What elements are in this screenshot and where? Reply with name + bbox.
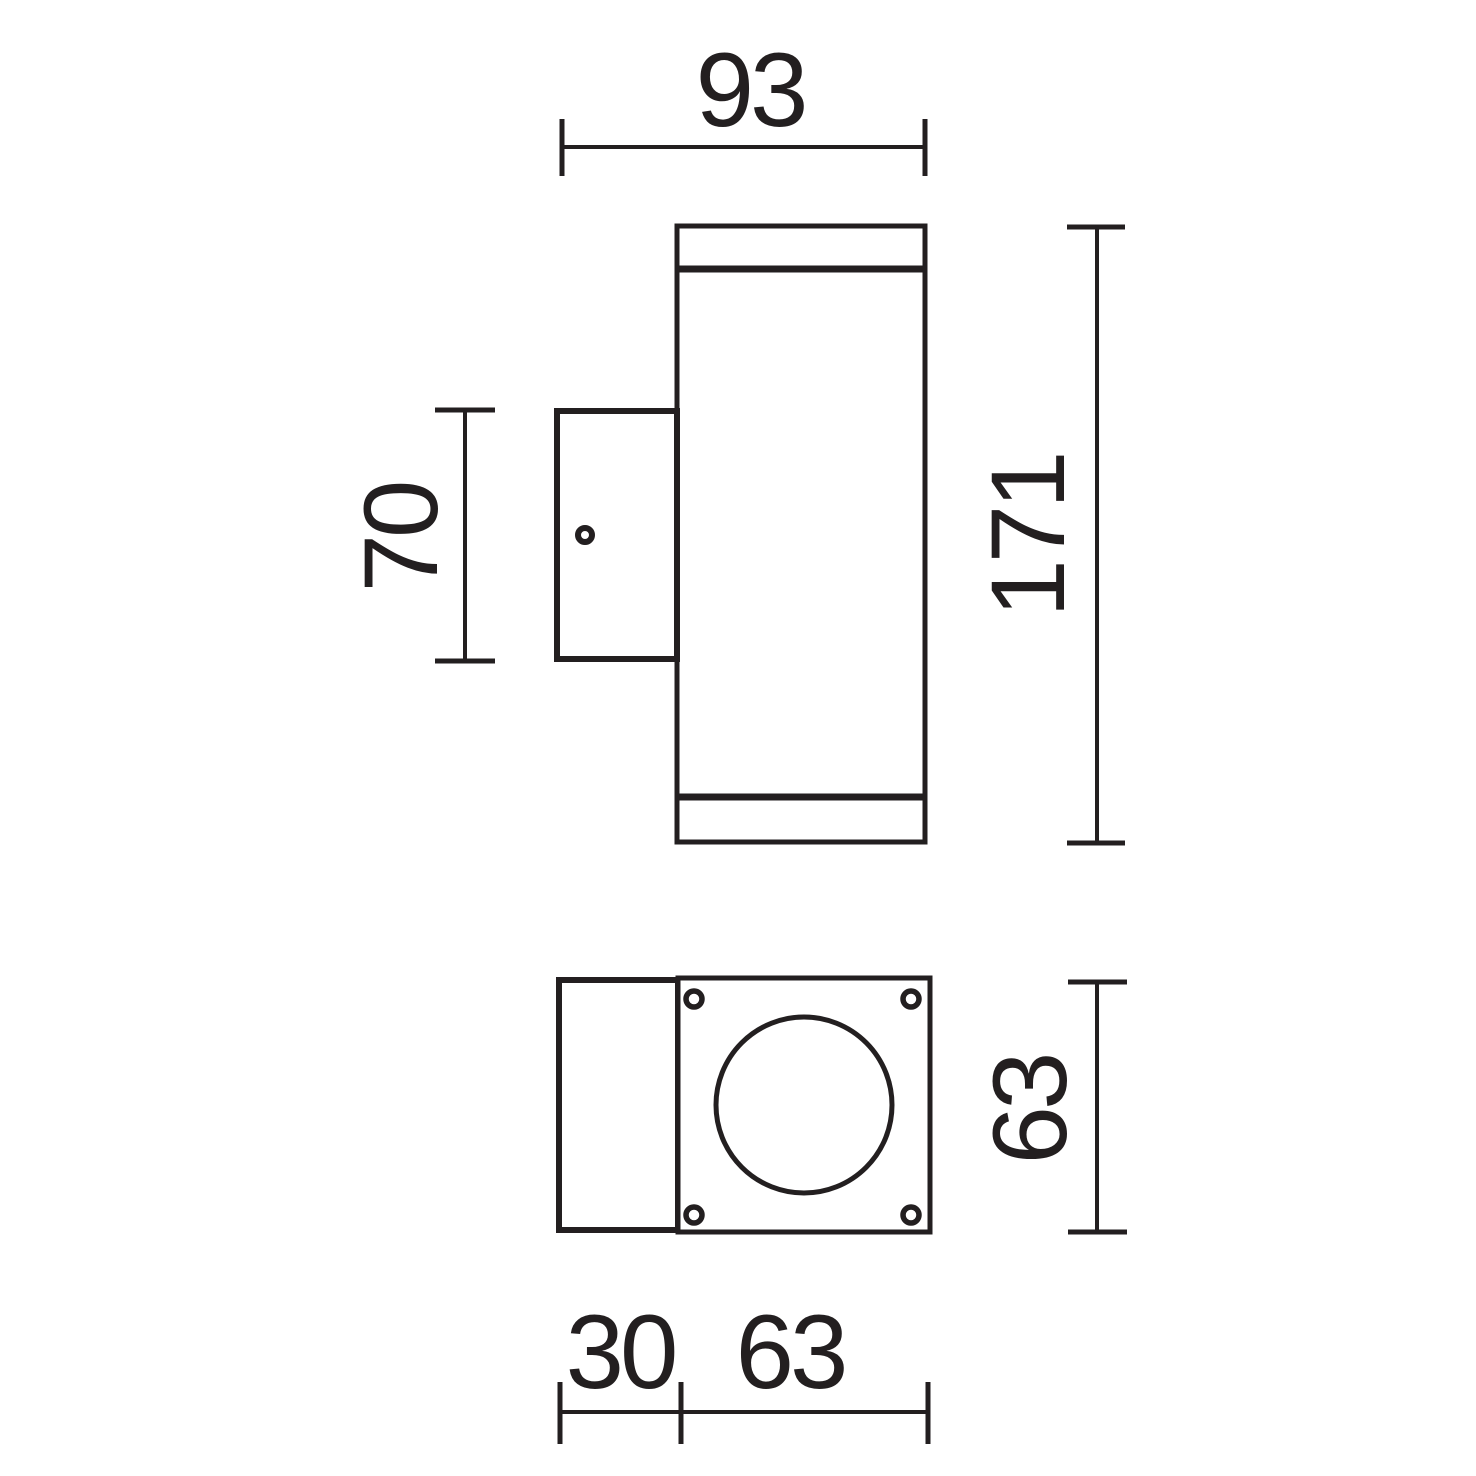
- bottom-view: [559, 978, 930, 1232]
- dimension-base-height: 63: [972, 982, 1127, 1232]
- dimension-label-overall-height: 171: [970, 454, 1087, 617]
- dimension-overall-height: 171: [970, 227, 1125, 843]
- dimension-label-base-width: 63: [736, 1294, 845, 1411]
- dimension-label-base-height: 63: [972, 1056, 1089, 1165]
- screw-hole-icon: [686, 1207, 702, 1223]
- dimension-label-overall-width: 93: [696, 32, 805, 149]
- bracket-screw-hole-icon: [578, 528, 592, 542]
- wall-light-dimension-drawing: 93 171 70 63 3: [0, 0, 1476, 1476]
- bracket-bottom-outline: [559, 980, 678, 1230]
- dimension-label-bracket-depth: 30: [566, 1294, 675, 1411]
- side-view: [557, 226, 925, 842]
- lamp-body-outline: [677, 226, 925, 842]
- screw-hole-icon: [686, 991, 702, 1007]
- dimension-bottom-widths: 30 63: [560, 1294, 928, 1444]
- dimension-label-bracket-height: 70: [343, 483, 460, 592]
- screw-hole-icon: [903, 991, 919, 1007]
- dimension-drawing-page: 93 171 70 63 3: [0, 0, 1476, 1476]
- screw-hole-icon: [903, 1207, 919, 1223]
- dimension-bracket-height: 70: [343, 410, 495, 661]
- dimension-overall-width: 93: [562, 32, 925, 176]
